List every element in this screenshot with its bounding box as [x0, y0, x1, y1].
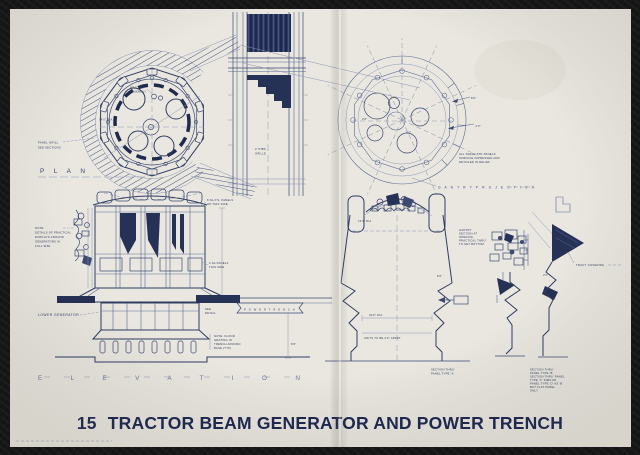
paper-shading [10, 9, 631, 447]
blueprint-drawing: BRACKET ASSEMBLY 34'0" DIA PANEL INFILL … [0, 0, 640, 455]
photo-of-blueprint: BRACKET ASSEMBLY 34'0" DIA PANEL INFILL … [0, 0, 640, 455]
